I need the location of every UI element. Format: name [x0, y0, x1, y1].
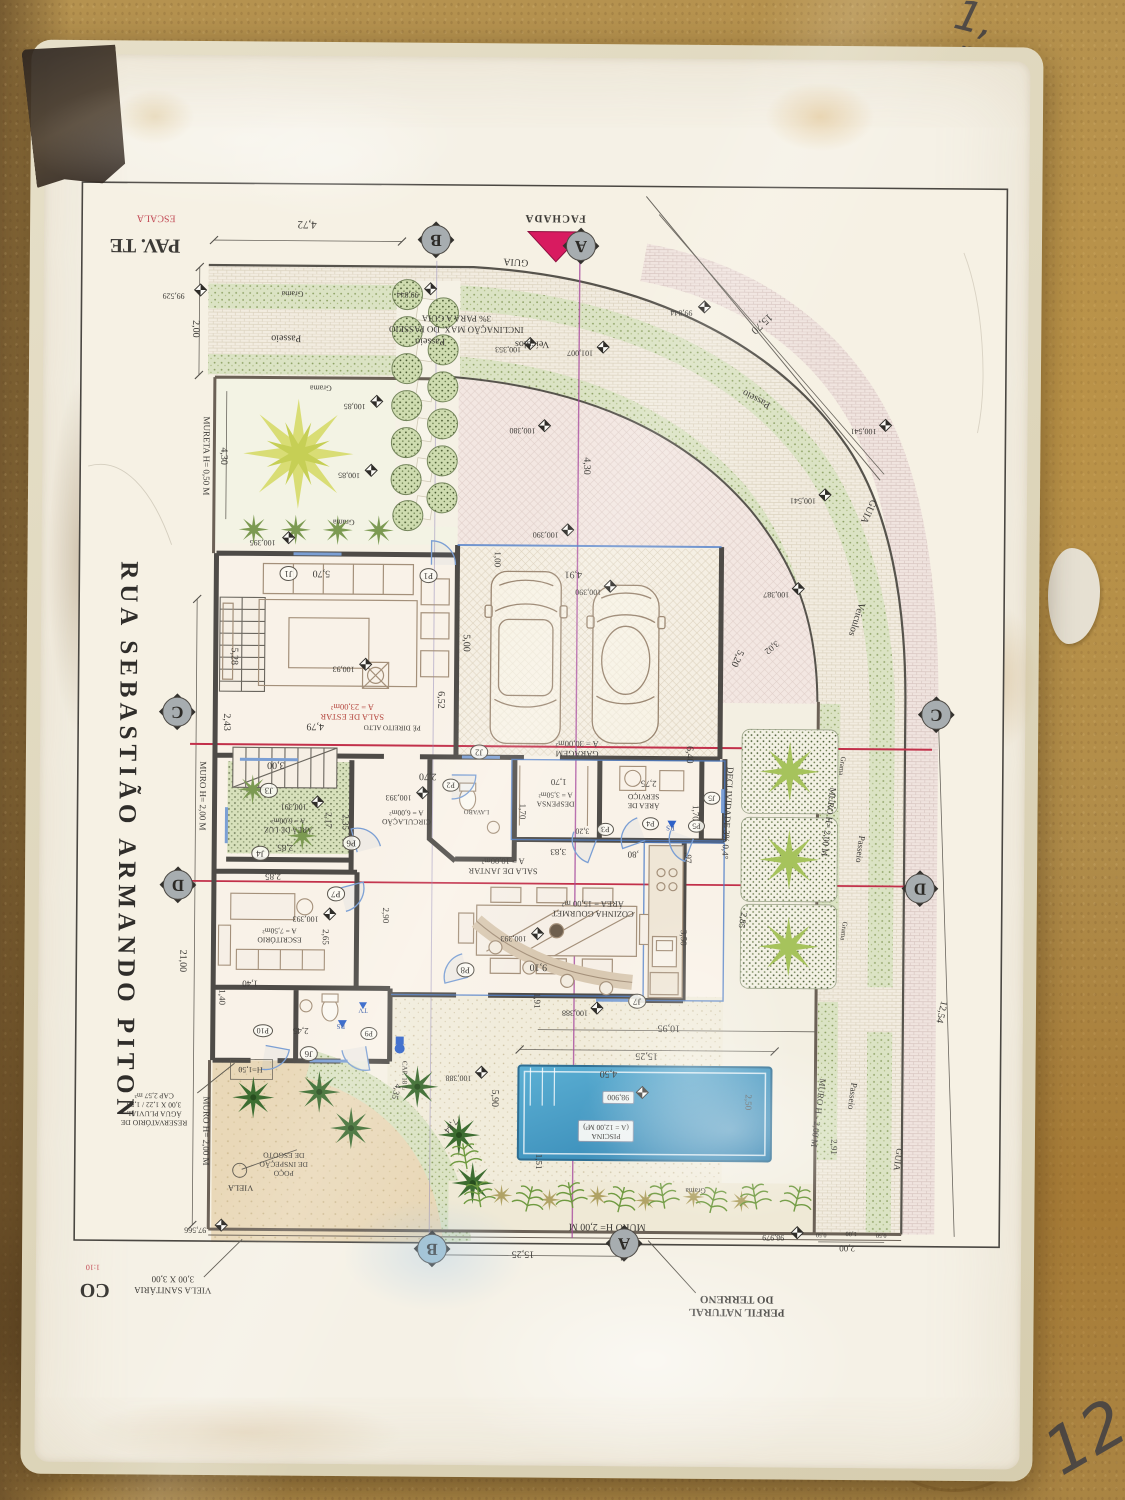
plan-label: 4,30: [217, 447, 229, 465]
plan-label: Grama: [310, 383, 332, 393]
plan-label: 1,40: [242, 978, 258, 989]
door-window-tag: P5: [688, 819, 705, 833]
plan-label: 100,93: [333, 664, 355, 674]
plan-label: 98,900: [602, 1090, 634, 1104]
plan-label: LAVABO: [464, 807, 489, 815]
plan-label: 100,380: [509, 426, 535, 436]
section-letter: A: [609, 1228, 639, 1258]
plan-label: COZINHA GOURMET ÁREA = 15,00 m²: [552, 899, 634, 920]
door-window-tag: P1: [419, 568, 437, 583]
plan-label: 100,390: [575, 587, 601, 597]
plan-label: POÇO DE INSPEÇÃO DE ESGOTO: [259, 1150, 308, 1177]
plan-label: GARAGEM A = 30,00m²: [555, 739, 598, 759]
plan-label: 4,91: [565, 568, 583, 580]
plan-label: 1,70: [690, 805, 701, 821]
plan-label: 100,393: [386, 793, 412, 803]
door-window-tag: P3: [597, 822, 614, 836]
plan-label: 100,393: [293, 914, 319, 924]
plan-label: 5,70: [313, 567, 331, 579]
plan-label: 100,391: [281, 802, 307, 812]
plan-label: INCLINAÇÃO MAX. DO PASSEIO 3% PARA A GUI…: [389, 313, 524, 335]
plan-label: 1,40: [217, 989, 228, 1005]
plan-label: 6,40: [683, 746, 695, 764]
plan-label: 2,00: [839, 1243, 855, 1254]
paper-wrap: RUA SEBASTIÃO ARMANDO PITON PAV. TEESCAL…: [0, 0, 1125, 1500]
plan-label: 99,529: [163, 291, 185, 301]
plan-label: MURETA H= 0,50 M: [201, 417, 212, 496]
plan-label: TV: [358, 1006, 367, 1014]
plan-label: ESCRITÓRIO A = 7,50m²: [257, 926, 301, 944]
plan-label: ESCALA: [137, 212, 176, 224]
section-marker: B: [419, 223, 453, 257]
plan-label: 5,90: [488, 1090, 500, 1108]
plan-label: 3,00: [267, 759, 285, 771]
plan-label: CAP. 18 L: [400, 1061, 408, 1090]
plan-label: Grama: [282, 289, 304, 299]
plan-label: 100,541: [850, 426, 876, 436]
plan-label: H=1,50: [238, 1065, 262, 1075]
plan-label: 2,91: [829, 1139, 840, 1155]
plan-label: VIELA: [228, 1183, 254, 1193]
plan-label: 4,72: [297, 217, 316, 230]
plan-label: 0,50: [816, 1230, 827, 1237]
plan-label: Passeio: [853, 835, 867, 863]
plan-label: 1:10: [86, 1262, 100, 1272]
plan-label: Grama: [333, 517, 355, 527]
section-letter: D: [905, 874, 935, 904]
street-name-label: RUA SEBASTIÃO ARMANDO PITON: [110, 561, 142, 1122]
plan-label: 100,388: [445, 1073, 471, 1083]
plan-label: 99,844: [670, 308, 692, 318]
plan-label: 2,35: [340, 814, 351, 830]
plan-label: Veículos: [845, 601, 867, 637]
plan-label: 3,50: [678, 930, 689, 946]
plan-label: 100,85: [344, 401, 366, 411]
plan-label: GUIA: [857, 497, 878, 525]
plan-label: 100,388: [562, 1008, 588, 1018]
section-marker: C: [160, 695, 194, 729]
door-window-tag: J5: [703, 791, 720, 805]
plan-label: 100,353: [495, 345, 521, 355]
plan-label: ÁREA DE LUZ A = 6,00m²: [264, 816, 312, 834]
plan-label: 100,395: [250, 538, 276, 548]
plan-label: VIELA SANITÁRIA 3,00 X 3,00: [134, 1274, 211, 1296]
plan-label: CO: [80, 1277, 110, 1301]
plan-label: 9,10: [530, 961, 548, 973]
plan-label: RS: [666, 824, 675, 832]
plan-label: PAV. TE: [109, 232, 180, 256]
plan-label: 1,70: [551, 776, 567, 787]
door-window-tag: P10: [253, 1024, 274, 1038]
plan-label: DECLIVIDADE 3% 0,4°: [719, 767, 735, 860]
section-letter: A: [566, 231, 596, 261]
plan-label: MURO H= 2,00 M: [200, 1096, 211, 1165]
plan-label: 1,91: [532, 993, 543, 1009]
plan-label: 101,007: [567, 348, 593, 358]
plan-label: 15,25: [512, 1248, 535, 1260]
plan-label: 2,90: [380, 908, 391, 924]
plan-label: 2,00: [189, 320, 201, 338]
plan-label: 7,84: [442, 1117, 460, 1136]
door-window-tag: J2: [470, 745, 488, 760]
plan-label: 3,83: [550, 846, 566, 857]
plan-label: 5,28: [228, 647, 240, 665]
plan-label: ,97: [683, 852, 694, 863]
plan-label: Grama: [838, 921, 849, 941]
door-window-tag: J1: [279, 566, 297, 581]
section-letter: B: [421, 225, 451, 255]
section-marker: A: [564, 229, 598, 263]
section-marker: D: [903, 872, 937, 906]
plan-label: Passeio: [741, 386, 773, 410]
plan-label: 3,20: [575, 826, 589, 836]
section-marker: D: [161, 868, 195, 902]
section-letter: D: [163, 870, 193, 900]
plan-label: RS: [337, 1022, 346, 1030]
section-marker: C: [919, 698, 953, 732]
plan-label: SALA DE JANTAR A = 10,00m²: [468, 856, 537, 877]
plan-label: 15,25: [635, 1050, 658, 1062]
door-window-tag: J3: [259, 783, 277, 798]
plan-label: 21,00: [176, 950, 188, 973]
plan-label: DESPENSA A = 3,50m²: [537, 790, 575, 808]
plan-label: 12,54: [933, 1000, 949, 1025]
plan-label: 100,390: [533, 530, 559, 540]
plan-label: 2,17: [323, 812, 334, 828]
plan-label: 5,00: [460, 634, 472, 652]
door-window-tag: P9: [360, 1027, 377, 1041]
plan-label: 10,95: [658, 1022, 681, 1034]
plan-label: 0,50: [876, 1231, 887, 1238]
plan-label: 2,85: [265, 871, 281, 882]
plan-label: Grama: [837, 756, 848, 776]
plan-label: PISCINA (A = 12,00 M²): [578, 1120, 634, 1142]
plan-label: CIRCULAÇÃO A = 6,00m²: [382, 808, 431, 826]
plan-label: GUIA: [891, 1148, 904, 1172]
plan-label: RESERVATÓRIO DE ÁGUA PLUVIAL 3,00 X 1,22…: [121, 1091, 188, 1127]
plan-label: 100,85: [338, 470, 360, 480]
plan-label: 4,79: [306, 720, 324, 732]
plan-label: ÁREA DE SERVIÇO: [628, 791, 660, 809]
plan-labels-layer: RUA SEBASTIÃO ARMANDO PITON PAV. TEESCAL…: [0, 0, 1125, 1500]
plan-label: ,80: [628, 849, 639, 860]
door-window-tag: P6: [342, 836, 360, 851]
plan-label: Grama: [685, 1185, 705, 1194]
plan-label: 1,70: [517, 804, 528, 820]
section-letter: C: [921, 700, 951, 730]
plan-label: 2,85: [277, 842, 293, 853]
plan-label: 100,393: [500, 934, 526, 944]
plan-label: 6,52: [434, 691, 446, 709]
plan-label: 2,50: [743, 1094, 754, 1110]
door-window-tag: P2: [442, 778, 459, 792]
plan-label: 99,844: [397, 290, 419, 300]
plan-label: 2,85: [736, 912, 749, 929]
door-window-tag: J7: [628, 994, 646, 1009]
door-window-tag: J6: [299, 1046, 317, 1061]
plan-label: 1,00: [492, 551, 503, 567]
plan-label: 5,20: [728, 648, 746, 669]
plan-label: Passeio: [845, 1082, 859, 1110]
door-window-tag: J4: [251, 846, 269, 861]
plan-label: Passeio: [271, 332, 301, 344]
section-letter: B: [417, 1234, 447, 1264]
plan-label: 100,387: [763, 590, 789, 600]
plan-label: PERFIL NATURAL DO TERRENO: [689, 1292, 785, 1319]
plan-label: SALA DE ESTAR A = 23,00m²: [320, 702, 384, 723]
door-window-tag: P7: [327, 887, 345, 902]
plan-label: 2,75: [641, 778, 657, 789]
plan-label: PÉ DIREITO ALTO: [364, 723, 421, 732]
plan-label: 97,566: [184, 1225, 206, 1235]
plan-label: 3,02: [762, 638, 781, 656]
door-window-tag: P8: [456, 963, 474, 978]
plan-label: MURO H= 2,00 M: [819, 787, 838, 857]
plan-label: 2,65: [320, 929, 331, 945]
plan-label: GUIA: [503, 255, 529, 268]
section-marker: B: [415, 1232, 449, 1266]
section-letter: C: [162, 697, 192, 727]
plan-label: MURO H - 2,00 M: [808, 1078, 828, 1148]
plan-label: FACHADA: [525, 211, 586, 224]
plan-label: 1,00: [845, 1229, 856, 1237]
plan-label: 2,45: [293, 1025, 309, 1036]
plan-label: 15,70: [748, 310, 775, 336]
plan-label: 100,541: [790, 496, 816, 506]
door-window-tag: P4: [642, 817, 659, 831]
plan-label: 2,70: [419, 770, 437, 782]
plan-label: 2,43: [220, 713, 232, 731]
photo-of-floor-plan: 1,”12: [0, 0, 1125, 1500]
plan-label: 4,50: [600, 1067, 618, 1079]
plan-label: 1,51: [533, 1154, 544, 1170]
plan-label: Passeio: [415, 335, 445, 347]
plan-label: MURO H= 2,00 M: [197, 761, 208, 830]
plan-label: 4,30: [580, 457, 592, 475]
plan-label: 98,979: [762, 1233, 784, 1243]
section-marker: A: [607, 1226, 641, 1260]
